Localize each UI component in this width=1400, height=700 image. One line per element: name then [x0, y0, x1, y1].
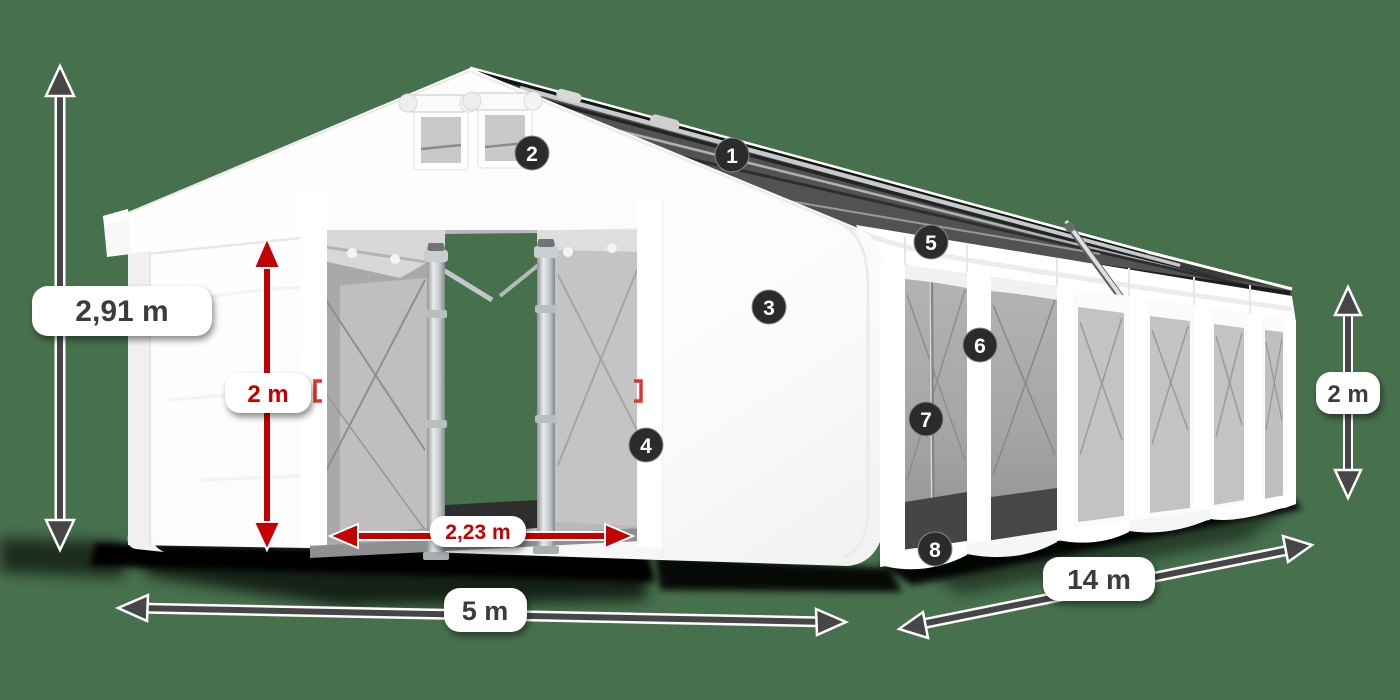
svg-text:8: 8	[929, 539, 941, 562]
svg-text:3: 3	[763, 297, 775, 320]
svg-text:2,23 m: 2,23 m	[445, 521, 510, 544]
svg-text:2 m: 2 m	[247, 381, 288, 408]
svg-text:5 m: 5 m	[462, 596, 509, 626]
svg-text:1: 1	[726, 145, 738, 168]
svg-text:4: 4	[640, 435, 652, 458]
svg-text:2 m: 2 m	[1327, 381, 1368, 408]
svg-text:2: 2	[526, 143, 538, 166]
svg-text:5: 5	[925, 232, 937, 255]
svg-text:14 m: 14 m	[1067, 564, 1131, 595]
svg-text:6: 6	[974, 335, 986, 358]
svg-text:2,91 m: 2,91 m	[75, 295, 168, 328]
svg-text:7: 7	[920, 409, 932, 432]
